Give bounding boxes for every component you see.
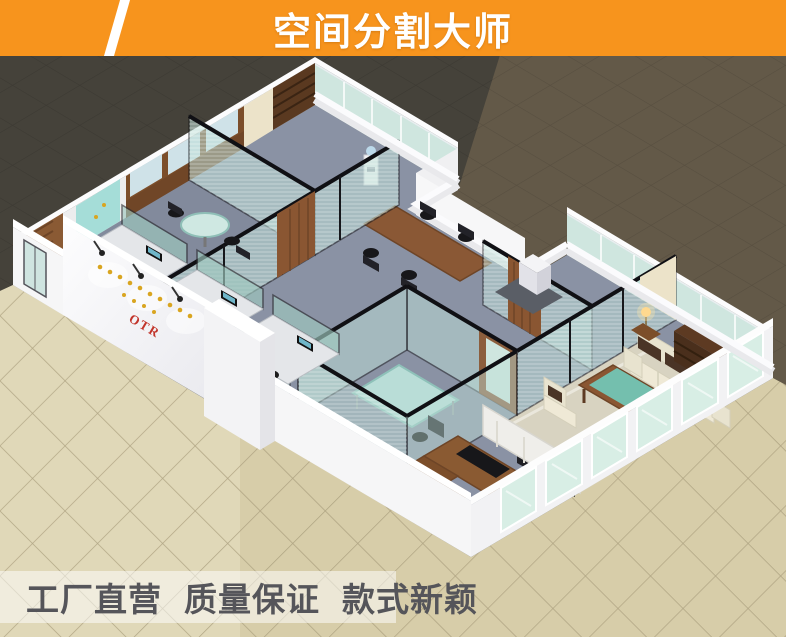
product-poster: 空间分割大师	[0, 0, 786, 637]
office-3d-render: OTR	[0, 55, 786, 637]
slogan-band: 工厂直营 质量保证 款式新颖	[0, 571, 396, 623]
slogan-item-2: 质量保证	[184, 573, 320, 621]
top-banner: 空间分割大师	[0, 0, 786, 56]
slogan-item-1: 工厂直营	[26, 573, 162, 621]
banner-title: 空间分割大师	[0, 0, 786, 56]
slogan-item-3: 款式新颖	[342, 573, 478, 621]
